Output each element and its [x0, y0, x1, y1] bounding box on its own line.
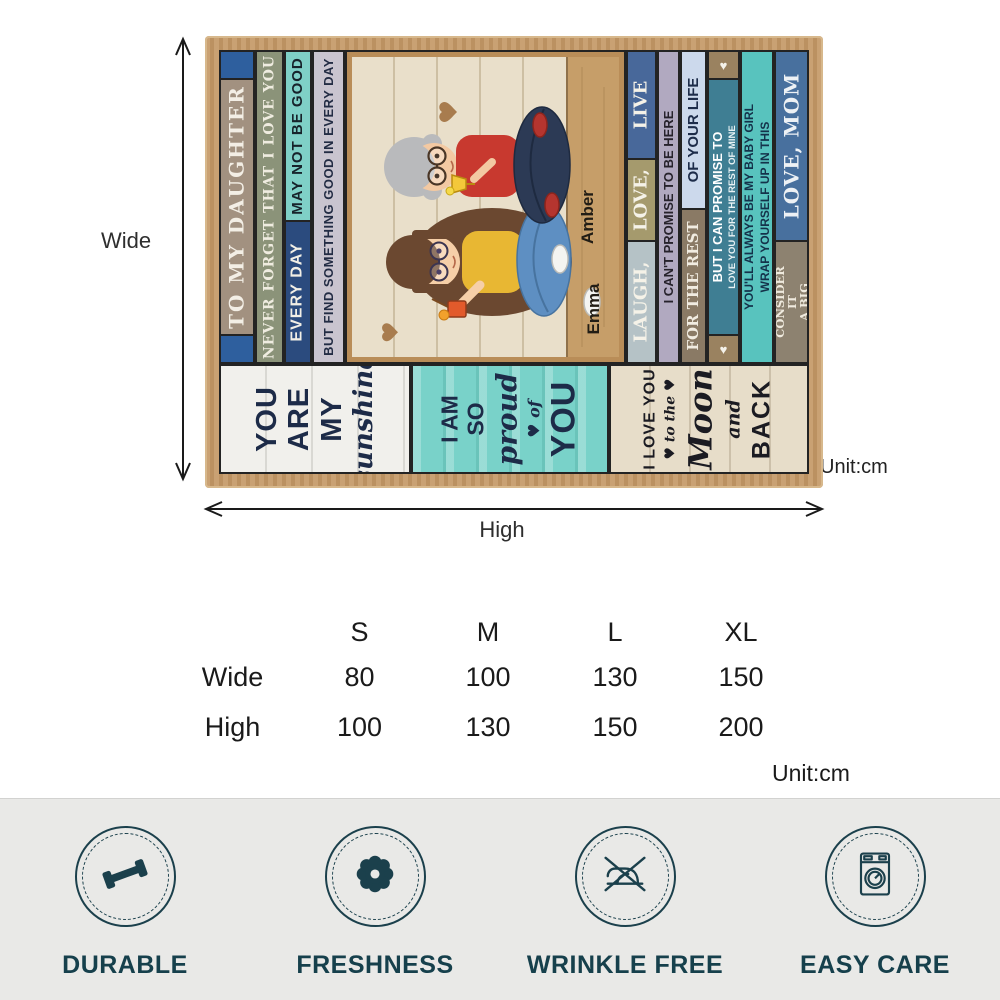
panel-text: ♥ of [524, 400, 543, 437]
strip-to-my-daughter: ♥ TO MY DAUGHTER ♥ [219, 50, 255, 364]
size-col-header: M [424, 612, 552, 652]
feature-badge [825, 826, 926, 927]
heart-icon: ♥ [720, 58, 728, 73]
size-row-label: High [170, 702, 295, 752]
strip-text: BUT FIND SOMETHING GOOD IN EVERY DAY [322, 58, 336, 356]
panel-text: ♥ to the ♥ [663, 378, 679, 459]
panel-text: proud [490, 373, 523, 466]
blanket-upper-section: ♥ TO MY DAUGHTER ♥ NEVER FORGET THAT I L… [219, 50, 809, 364]
flower-icon [347, 846, 403, 907]
strip-text: BUT I CAN PROMISE TO [710, 132, 725, 283]
strip-every-day: MAY NOT BE GOOD EVERY DAY [284, 50, 312, 364]
blue-cap [221, 334, 253, 362]
size-value: 150 [552, 702, 678, 752]
feature-durable: DURABLE [0, 799, 250, 1000]
strip-but-find-good: BUT FIND SOMETHING GOOD IN EVERY DAY [312, 50, 345, 364]
size-value: 80 [295, 652, 424, 702]
panel-text: YOU ARE MY [251, 386, 348, 452]
panel-text: and [723, 399, 745, 438]
panel-text: I AM SO [437, 395, 490, 443]
strip-text: LAUGH, [632, 262, 651, 343]
size-value: 100 [424, 652, 552, 702]
size-value: 200 [678, 702, 804, 752]
panel-text: sunshine [349, 364, 379, 474]
strip-text: MAY NOT BE GOOD [290, 57, 306, 215]
blanket-product-image: ♥ TO MY DAUGHTER ♥ NEVER FORGET THAT I L… [205, 36, 823, 488]
heart-icon: ♥ [720, 342, 728, 357]
size-col-header: L [552, 612, 678, 652]
strip-text: I CAN'T PROMISE TO BE HERE [662, 111, 676, 304]
strip-text: WRAP YOURSELF UP IN THIS [758, 122, 772, 293]
strip-text: LOVE, MOM [781, 73, 802, 220]
size-value: 130 [552, 652, 678, 702]
size-value: 100 [295, 702, 424, 752]
blanket-unit-label: Unit:cm [820, 456, 888, 479]
strip-baby-girl: YOU'LL ALWAYS BE MY BABY GIRL WRAP YOURS… [740, 50, 774, 364]
panel-text: Moon [682, 368, 720, 469]
strip-laugh-love-live: LIVE LOVE, LAUGH, [626, 50, 657, 364]
blue-cap [221, 52, 253, 80]
strip-rest-of-your-life: OF YOUR LIFE FOR THE REST [680, 50, 707, 364]
strip-text: OF YOUR LIFE [686, 78, 702, 183]
strip-cant-promise: I CAN'T PROMISE TO BE HERE [657, 50, 680, 364]
size-row-label: Wide [170, 652, 295, 702]
size-col-header: S [295, 612, 424, 652]
high-label: High [470, 517, 534, 543]
feature-label: EASY CARE [800, 951, 950, 980]
feature-label: DURABLE [62, 951, 188, 980]
dumbbell-icon [97, 846, 153, 907]
feature-label: WRINKLE FREE [527, 951, 723, 980]
name-emma: Emma [584, 283, 603, 335]
wide-dimension-arrow [168, 30, 198, 488]
blanket-product-spec-page: Wide High Unit:cm ♥ TO MY DAUGHTER ♥ NEV… [0, 0, 1000, 1000]
strip-love-mom: LOVE, MOM & CONSIDER IT A BIG HUG [774, 50, 809, 364]
strip-text: & CONSIDER IT A BIG HUG [776, 266, 807, 338]
wide-label: Wide [94, 228, 158, 254]
washing-machine-icon [847, 846, 903, 907]
strip-never-forget: NEVER FORGET THAT I LOVE YOU [255, 50, 284, 364]
panel-love-you-to-the-moon: I LOVE YOU ♥ to the ♥ Moon and BACK [609, 364, 809, 474]
feature-badge [75, 826, 176, 927]
feature-easy-care: EASY CARE [750, 799, 1000, 1000]
strip-text: EVERY DAY [290, 242, 307, 341]
table-unit-label: Unit:cm [772, 760, 850, 787]
strip-text: LOVE, [632, 169, 651, 231]
heart-cap: ♥ [709, 334, 738, 362]
size-value: 150 [678, 652, 804, 702]
feature-freshness: FRESHNESS [250, 799, 500, 1000]
strip-text: LOVE YOU FOR THE REST OF MINE [727, 125, 738, 288]
strip-text: FOR THE REST [686, 221, 702, 350]
feature-badge [325, 826, 426, 927]
panel-text: BACK [748, 379, 777, 459]
panel-text: YOU [544, 381, 583, 458]
features-bar: DURABLE FRESHNE [0, 798, 1000, 1000]
panel-i-am-so-proud: I AM SO proud ♥ of YOU [411, 364, 609, 474]
size-value: 130 [424, 702, 552, 752]
size-col-header: XL [678, 612, 804, 652]
panel-text: I LOVE YOU [642, 368, 660, 469]
strip-text: NEVER FORGET THAT I LOVE YOU [262, 55, 277, 359]
strip-text: LIVE [632, 81, 651, 130]
size-table: S M L XL Wide 80 100 130 150 High 100 13… [170, 612, 810, 752]
heart-cap: ♥ [709, 52, 738, 78]
family-illustration: Amber Emma [352, 57, 619, 357]
feature-badge [575, 826, 676, 927]
feature-wrinkle-free: WRINKLE FREE [500, 799, 750, 1000]
strip-promise-to-love: ♥ BUT I CAN PROMISE TO LOVE YOU FOR THE … [707, 50, 740, 364]
feature-label: FRESHNESS [296, 951, 453, 980]
table-corner [170, 612, 295, 652]
name-amber: Amber [578, 190, 597, 244]
blanket-lower-section: YOU ARE MY sunshine I AM SO proud ♥ of Y… [219, 364, 809, 474]
photo-panel: Amber Emma [345, 50, 626, 364]
no-iron-icon [597, 846, 653, 907]
strip-text: YOU'LL ALWAYS BE MY BABY GIRL [742, 104, 756, 310]
strip-text: ♥ TO MY DAUGHTER ♥ [227, 80, 248, 334]
panel-you-are-my-sunshine: YOU ARE MY sunshine [219, 364, 411, 474]
